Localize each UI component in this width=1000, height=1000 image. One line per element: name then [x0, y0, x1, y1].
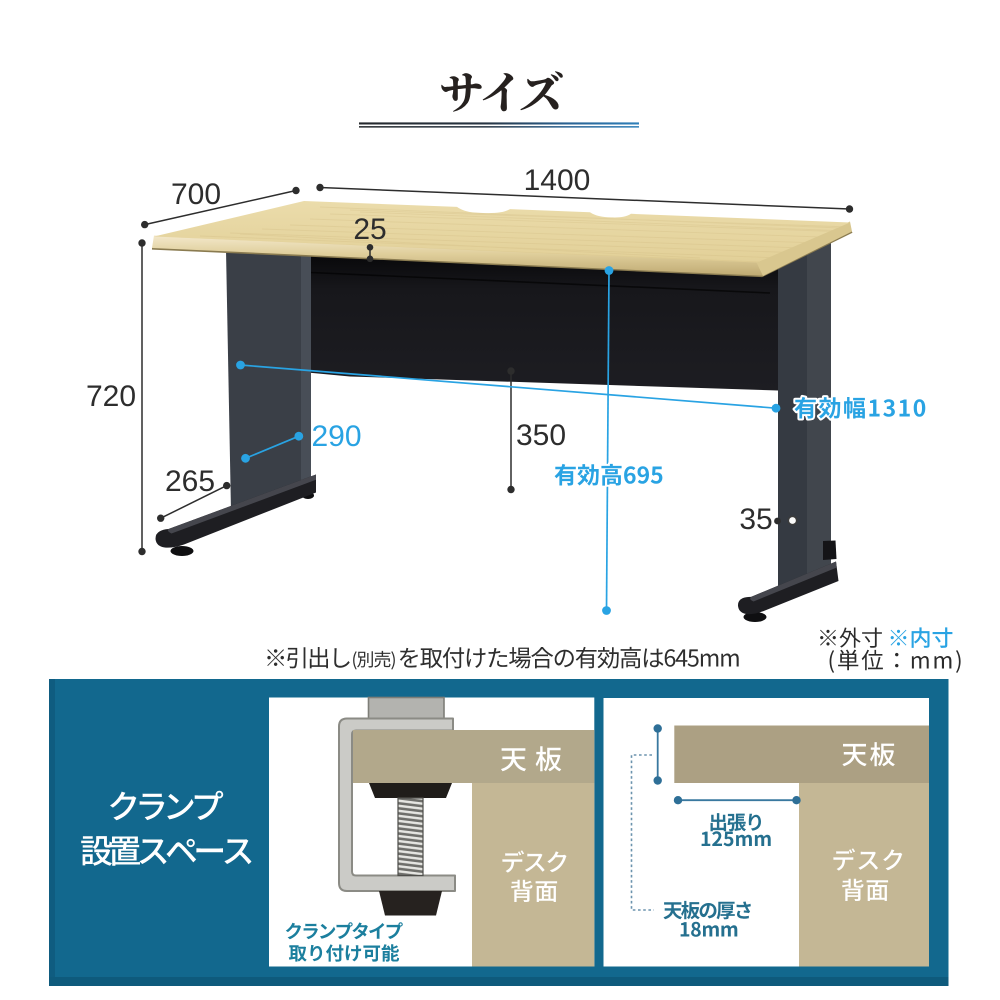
svg-text:35: 35 — [739, 503, 772, 536]
svg-text:265: 265 — [165, 465, 215, 498]
svg-text:290: 290 — [311, 420, 361, 453]
svg-text:700: 700 — [171, 178, 221, 211]
svg-text:350: 350 — [516, 419, 566, 452]
svg-text:25: 25 — [353, 213, 386, 246]
svg-text:720: 720 — [86, 380, 136, 413]
svg-text:1400: 1400 — [524, 164, 591, 197]
